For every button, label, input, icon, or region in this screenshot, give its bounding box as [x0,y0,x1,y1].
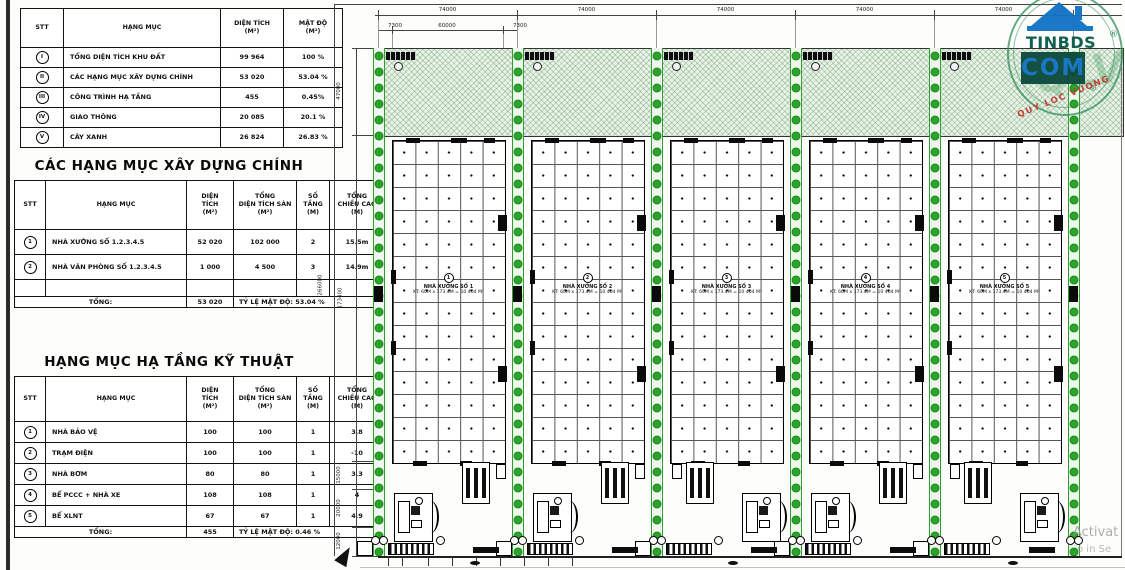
door-mark [823,138,837,143]
row-stt: 1 [15,422,46,443]
scan-border [6,0,10,570]
door-mark [391,270,396,284]
row-value: 20 085 [221,108,284,128]
office-core [411,506,420,515]
door-mark [776,366,785,382]
dock-booth [672,464,682,479]
manhole-icon [796,536,805,545]
row-marker-icon: I [36,51,49,64]
column-header: DIỆN TÍCH (M²) [187,181,234,230]
house-chimney-icon [1075,6,1082,20]
table-header-row: STTHẠNG MỤCDIỆN TÍCH (M²)MẬT ĐỘ (M²) [21,9,343,48]
road-tick [388,557,389,566]
row-value: 52 020 [187,230,234,255]
road-tick [524,557,525,566]
activation-watermark-line2: o in Se [1077,544,1111,555]
building-label: 3 NHÀ XƯỞNG SỐ 3 KT: 60M x 173.4M = 10 4… [671,273,783,296]
row-name: CÔNG TRÌNH HẠ TẦNG [64,88,221,108]
door-mark [669,341,674,355]
bay-name-plate [525,52,555,60]
manhole-icon [714,536,723,545]
dim-tick [656,10,657,20]
column-header: STT [15,181,46,230]
survey-marker-icon [533,62,542,71]
entry-gate [944,543,990,555]
dock-hatch [690,468,710,498]
dim-label-overall-left: 266000 [318,275,324,296]
dim-tick [517,10,518,20]
parking-strip [612,547,638,553]
row-name: CÁC HẠNG MỤC XÂY DỰNG CHÍNH [64,68,221,88]
column-header: STT [21,9,64,48]
row-value: 99 964 [221,48,284,68]
column-header: STT [15,377,46,422]
door-mark [1054,366,1063,382]
row-marker-icon: II [36,71,49,84]
dim-label-left: 15000 [336,466,342,484]
dim-tick [378,10,379,20]
building-size: KT: 60M x 173.4M = 10 404 M² [532,290,644,296]
row-stt: V [21,128,64,148]
row-value: 2 [297,230,330,255]
activation-watermark-line1: Activat [1073,525,1118,540]
row-value: 100 [187,422,234,443]
door-mark [391,341,396,355]
door-mark [729,138,745,143]
dock-booth [496,464,506,479]
main-construction-table: STTHẠNG MỤCDIỆN TÍCH (M²)TỔNG DIỆN TÍCH … [14,180,385,308]
office-stair-arc [1051,501,1065,533]
table-header-row: STTHẠNG MỤCDIỆN TÍCH (M²)TỔNG DIỆN TÍCH … [15,181,385,230]
entry-gate [527,543,573,555]
column-header: DIỆN TÍCH (M²) [221,9,284,48]
survey-marker-icon [950,62,959,71]
office-core [550,506,559,515]
dim-label-bay-width: 74000 [423,7,473,13]
registered-mark: ® [1109,30,1118,40]
office-column-icon [832,497,840,505]
door-mark [413,461,427,466]
dim-tick [352,556,378,557]
office-building [1020,493,1059,542]
row-marker-icon: 1 [24,236,37,249]
row-value: 100 [234,422,297,443]
building-label: 1 NHÀ XƯỞNG SỐ 1 KT: 60M x 173.4M = 10 4… [393,273,505,296]
row-value: 67 [234,506,297,527]
bay-name-plate [386,52,416,60]
office-stair-arc [564,501,578,533]
door-mark [1040,138,1051,143]
column-header: SỐ TẦNG (M) [297,377,330,422]
total-label: TỔNG: [15,527,187,538]
parking-strip [890,547,916,553]
tree-row-strip [790,48,802,556]
dim-label-left: 12000 [336,532,342,550]
column-header: SỐ TẦNG (M) [297,181,330,230]
main-items-title: CÁC HẠNG MỤC XÂY DỰNG CHÍNH [14,158,324,174]
row-value: 455 [221,88,284,108]
dim-label-sub: 7300 [496,23,544,29]
row-value: 1 [297,506,330,527]
brand-tld: COM [1021,52,1085,84]
office-building [394,493,433,542]
row-marker-icon: V [36,131,49,144]
dim-label-bay-width: 74000 [562,7,612,13]
office-core [828,506,837,515]
road-tick [452,557,453,566]
row-value: 1 [297,422,330,443]
row-value: 102 000 [234,230,297,255]
strip-crossing [513,286,522,302]
door-mark [901,138,912,143]
building-size: KT: 60M x 173.4M = 10 404 M² [949,290,1061,296]
table-row: 1NHÀ BẢO VỆ10010013.8 [15,422,385,443]
column-header: TỔNG DIỆN TÍCH SÀN (M²) [234,377,297,422]
dim-label-sub: 60000 [423,23,471,29]
manhole-icon [935,536,944,545]
dim-label-sub: 7300 [371,23,419,29]
office-room [550,520,561,528]
dim-label-left: 47000 [336,82,342,100]
office-room [398,501,410,533]
row-marker-icon: 1 [24,426,37,439]
table-row: 4BỂ PCCC + NHÀ XE10810814 [15,485,385,506]
door-mark [637,215,646,231]
door-mark [406,138,420,143]
road-blob [1008,561,1018,565]
guard-booth [357,541,373,556]
column-header: HẠNG MỤC [46,181,187,230]
row-name: TỔNG DIỆN TÍCH KHU ĐẤT [64,48,221,68]
dim-label-left: 20000 [336,499,342,517]
table-row: 5BỂ XLNT676714.9 [15,506,385,527]
dock-hatch [605,468,625,498]
row-value: 53 020 [221,68,284,88]
road-blob [728,561,738,565]
row-value: 80 [234,464,297,485]
office-column-icon [415,497,423,505]
building-size: KT: 60M x 173.4M = 10 404 M² [810,290,922,296]
office-stair-arc [773,501,787,533]
office-core [1037,506,1046,515]
door-mark [808,270,813,284]
office-building [533,493,572,542]
dim-label-bay-width: 74000 [840,7,890,13]
dim-tick [795,10,796,20]
survey-marker-icon [672,62,681,71]
brand-name: TINBDS [1017,33,1105,52]
door-mark [962,138,976,143]
row-value: 67 [187,506,234,527]
manhole-icon [518,536,527,545]
row-value: 100 [187,443,234,464]
column-header: DIỆN TÍCH (M²) [187,377,234,422]
building-size: KT: 60M x 173.4M = 10 404 M² [393,290,505,296]
row-stt: 3 [15,464,46,485]
warehouse-building: 5 NHÀ XƯỞNG SỐ 5 KT: 60M x 173.4M = 10 4… [948,140,1062,464]
row-value [297,280,330,297]
warehouse-building: 2 NHÀ XƯỞNG SỐ 2 KT: 60M x 173.4M = 10 4… [531,140,645,464]
door-mark [623,138,634,143]
office-building [811,493,850,542]
row-value: 3 [297,255,330,280]
building-size: KT: 60M x 173.4M = 10 404 M² [671,290,783,296]
door-mark [915,366,924,382]
site-plan-page: STTHẠNG MỤCDIỆN TÍCH (M²)MẬT ĐỘ (M²) ITỔ… [0,0,1125,570]
door-mark [669,270,674,284]
strip-crossing [652,286,661,302]
table-row: 2TRẠM ĐIỆN1001001-10 [15,443,385,464]
row-stt [15,280,46,297]
entry-gate [388,543,434,555]
site-boundary-bottom [378,556,1122,558]
survey-marker-icon [811,62,820,71]
door-mark [530,270,535,284]
total-note: TỶ LỆ MẬT ĐỘ: 0.46 % [234,527,385,538]
row-name: NHÀ XƯỞNG SỐ 1.2.3.4.5 [46,230,187,255]
door-mark [738,461,750,466]
building-label: 5 NHÀ XƯỞNG SỐ 5 KT: 60M x 173.4M = 10 4… [949,273,1061,296]
row-value: 1 [297,443,330,464]
row-marker-icon: 3 [24,468,37,481]
entry-gate [666,543,712,555]
office-room [1037,520,1048,528]
door-mark [545,138,559,143]
row-marker-icon: III [36,91,49,104]
dim-label-left: 173400 [338,288,344,309]
manhole-icon [657,536,666,545]
dock-booth [635,464,645,479]
house-base-icon [1027,26,1093,31]
road-blob [470,561,480,565]
dim-extension [795,20,796,48]
row-value [187,280,234,297]
total-note: TỶ LỆ MẬT ĐỘ: 53.04 % [234,297,385,308]
tree-row-strip [512,48,524,556]
infrastructure-table: STTHẠNG MỤCDIỆN TÍCH (M²)TỔNG DIỆN TÍCH … [14,376,385,538]
office-building [742,493,781,542]
dock-hatch [466,468,486,498]
table-row: VCÂY XANH26 82426.83 % [21,128,343,148]
office-column-icon [1041,497,1049,505]
office-room [411,520,422,528]
infra-items-title: HẠNG MỤC HẠ TẦNG KỸ THUẬT [14,354,324,370]
row-name: BỂ PCCC + NHÀ XE [46,485,187,506]
dim-connector [334,4,378,5]
building-number-icon: 1 [444,273,454,283]
office-stair-arc [842,501,856,533]
office-room [815,501,827,533]
building-number-icon: 5 [1000,273,1010,283]
table-total-row: TỔNG: 53 020 TỶ LỆ MẬT ĐỘ: 53.04 % [15,297,385,308]
building-label: 4 NHÀ XƯỞNG SỐ 4 KT: 60M x 173.4M = 10 4… [810,273,922,296]
row-value: 108 [234,485,297,506]
road-tick [572,557,573,566]
door-mark [1054,215,1063,231]
door-mark [1016,461,1028,466]
tree-row-strip [651,48,663,556]
manhole-icon [575,536,584,545]
row-value: 1 [297,485,330,506]
row-name: NHÀ VĂN PHÒNG SỐ 1.2.3.4.5 [46,255,187,280]
row-value: 80 [187,464,234,485]
row-name [46,280,187,297]
column-header: TỔNG DIỆN TÍCH SÀN (M²) [234,181,297,230]
door-mark [915,215,924,231]
row-stt: IV [21,108,64,128]
warehouse-building: 3 NHÀ XƯỞNG SỐ 3 KT: 60M x 173.4M = 10 4… [670,140,784,464]
building-label: 2 NHÀ XƯỞNG SỐ 2 KT: 60M x 173.4M = 10 4… [532,273,644,296]
row-marker-icon: 4 [24,489,37,502]
road-tick [500,557,501,566]
row-stt: II [21,68,64,88]
row-marker-icon: 2 [24,261,37,274]
dock-booth [950,464,960,479]
row-stt: 5 [15,506,46,527]
manhole-icon [436,536,445,545]
row-value [234,280,297,297]
row-value: 1 [297,464,330,485]
door-mark [552,461,566,466]
building-number-icon: 2 [583,273,593,283]
dim-label-bay-width: 74000 [701,7,751,13]
row-value: 26 824 [221,128,284,148]
survey-marker-icon [394,62,403,71]
row-name: CÂY XANH [64,128,221,148]
dock-hatch [968,468,988,498]
road-line [360,567,1125,568]
table-header-row: STTHẠNG MỤCDIỆN TÍCH (M²)TỔNG DIỆN TÍCH … [15,377,385,422]
row-name: BỂ XLNT [46,506,187,527]
bay-name-plate [803,52,833,60]
row-marker-icon: 5 [24,510,37,523]
office-room [828,520,839,528]
entry-gate [805,543,851,555]
building-number-icon: 4 [861,273,871,283]
parking-strip [1029,547,1055,553]
loading-dock [686,462,714,504]
row-stt: 4 [15,485,46,506]
parking-strip [751,547,777,553]
strip-crossing [930,286,939,302]
building-number-icon: 3 [722,273,732,283]
row-name: NHÀ BẢO VỆ [46,422,187,443]
table-total-row: TỔNG: 455 TỶ LỆ MẬT ĐỘ: 0.46 % [15,527,385,538]
row-value: 4 500 [234,255,297,280]
table-row: IICÁC HẠNG MỤC XÂY DỰNG CHÍNH53 02053.04… [21,68,343,88]
dim-extension [656,20,657,48]
strip-crossing [791,286,800,302]
door-mark [498,215,507,231]
tree-row-strip [373,48,385,556]
table-row: 1NHÀ XƯỞNG SỐ 1.2.3.4.552 020102 000215.… [15,230,385,255]
table-row: IVGIAO THÔNG20 08520.1 % [21,108,343,128]
door-mark [684,138,698,143]
dim-line-sub [378,30,517,31]
warehouse-building: 1 NHÀ XƯỞNG SỐ 1 KT: 60M x 173.4M = 10 4… [392,140,506,464]
office-stair-arc [425,501,439,533]
table-row: 2NHÀ VĂN PHÒNG SỐ 1.2.3.4.51 0004 500314… [15,255,385,280]
dim-chain-left [356,48,357,556]
door-mark [947,341,952,355]
row-value: 1 000 [187,255,234,280]
door-mark [947,270,952,284]
door-mark [498,366,507,382]
office-room [746,501,758,533]
dim-extension [934,20,935,48]
row-name: TRẠM ĐIỆN [46,443,187,464]
column-header: HẠNG MỤC [64,9,221,48]
door-mark [484,138,495,143]
office-core [759,506,768,515]
row-stt: 2 [15,443,46,464]
column-header: HẠNG MỤC [46,377,187,422]
road-tick [402,557,403,566]
row-name: NHÀ BƠM [46,464,187,485]
parking-strip [473,547,499,553]
door-mark [808,341,813,355]
row-marker-icon: IV [36,111,49,124]
manhole-icon [992,536,1001,545]
office-column-icon [554,497,562,505]
total-label: TỔNG: [15,297,187,308]
row-stt: 2 [15,255,46,280]
office-column-icon [763,497,771,505]
row-stt: III [21,88,64,108]
total-area: 53 020 [187,297,234,308]
loading-dock [964,462,992,504]
table-row: IIICÔNG TRÌNH HẠ TẦNG4550.45% [21,88,343,108]
door-mark [1007,138,1023,143]
table-row: 3NHÀ BƠM808013.3 [15,464,385,485]
row-marker-icon: 2 [24,447,37,460]
table-row [15,280,385,297]
door-mark [530,341,535,355]
door-mark [868,138,884,143]
row-value: 100 [234,443,297,464]
dock-hatch [883,468,903,498]
dim-tick [934,10,935,20]
office-room [759,520,770,528]
loading-dock [462,462,490,504]
dim-extension [392,34,393,48]
row-stt: I [21,48,64,68]
row-stt: 1 [15,230,46,255]
strip-crossing [374,286,383,302]
road-tick [548,557,549,566]
tree-row-strip [929,48,941,556]
total-area: 455 [187,527,234,538]
manhole-icon [379,536,388,545]
door-mark [830,461,844,466]
warehouse-building: 4 NHÀ XƯỞNG SỐ 4 KT: 60M x 173.4M = 10 4… [809,140,923,464]
tinbds-watermark: QLV TINBDS COM ® ® QUY LOC VUONG [1005,0,1125,125]
row-value: 108 [187,485,234,506]
land-use-summary-table: STTHẠNG MỤCDIỆN TÍCH (M²)MẬT ĐỘ (M²) ITỔ… [20,8,343,148]
door-mark [762,138,773,143]
door-mark [451,138,467,143]
loading-dock [601,462,629,504]
dim-extension [503,34,504,48]
office-room [1024,501,1036,533]
office-room [537,501,549,533]
table-row: ITỔNG DIỆN TÍCH KHU ĐẤT99 964100 % [21,48,343,68]
loading-dock [879,462,907,504]
bay-name-plate [664,52,694,60]
manhole-icon [853,536,862,545]
row-name: GIAO THÔNG [64,108,221,128]
dock-booth [913,464,923,479]
